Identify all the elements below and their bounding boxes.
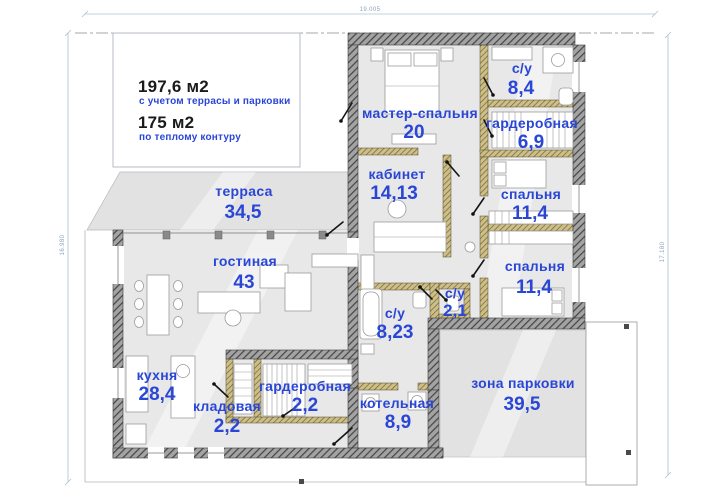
svg-text:2,1: 2,1 <box>443 301 467 320</box>
svg-text:гостиная: гостиная <box>213 253 277 269</box>
floor-plan-canvas: 19.005 16.980 17.180 <box>0 0 710 502</box>
svg-text:с/у: с/у <box>385 305 405 321</box>
svg-text:39,5: 39,5 <box>504 394 541 415</box>
svg-text:гардеробная: гардеробная <box>259 378 351 394</box>
svg-text:20: 20 <box>403 122 424 143</box>
svg-text:8,4: 8,4 <box>508 78 535 99</box>
svg-text:кладовая: кладовая <box>193 398 261 414</box>
svg-text:11,4: 11,4 <box>516 277 552 298</box>
room-label-office: кабинет 14,13 <box>368 166 425 204</box>
svg-text:котельная: котельная <box>360 395 434 411</box>
svg-text:мастер-спальня: мастер-спальня <box>362 105 478 121</box>
dimension-right-label: 17.180 <box>660 241 666 262</box>
svg-text:терраса: терраса <box>215 183 272 199</box>
svg-text:2,2: 2,2 <box>214 416 240 437</box>
dimension-left-label: 16.980 <box>60 234 66 255</box>
svg-text:28,4: 28,4 <box>139 384 176 405</box>
room-label-kitchen: кухня 28,4 <box>137 367 178 405</box>
svg-text:6,9: 6,9 <box>518 132 544 153</box>
room-label-bathroom-guest: с/у 2,1 <box>443 285 467 320</box>
svg-text:8,9: 8,9 <box>385 412 411 433</box>
svg-text:34,5: 34,5 <box>225 202 262 223</box>
svg-text:11,4: 11,4 <box>512 203 548 224</box>
heated-area-note: по теплому контуру <box>139 132 241 143</box>
svg-text:кухня: кухня <box>137 367 178 383</box>
svg-text:кабинет: кабинет <box>368 166 425 182</box>
total-area-value: 197,6 м2 <box>138 77 209 96</box>
svg-text:спальня: спальня <box>501 186 561 202</box>
parking-outline-rect <box>586 322 637 485</box>
heated-area-value: 175 м2 <box>138 113 194 132</box>
svg-text:зона парковки: зона парковки <box>471 375 575 391</box>
svg-text:14,13: 14,13 <box>370 183 418 204</box>
svg-text:2,2: 2,2 <box>292 395 318 416</box>
svg-text:43: 43 <box>233 272 254 293</box>
dimension-top-label: 19.005 <box>360 7 381 13</box>
svg-text:8,23: 8,23 <box>377 322 414 343</box>
svg-text:с/у: с/у <box>512 60 532 76</box>
svg-text:гардеробная: гардеробная <box>486 115 578 131</box>
floor-plan-drawing: 19.005 16.980 17.180 <box>0 0 710 502</box>
svg-text:с/у: с/у <box>445 285 465 301</box>
room-label-bathroom-master: с/у 8,4 <box>508 60 535 99</box>
total-area-note: с учетом террасы и парковки <box>139 96 291 107</box>
svg-text:спальня: спальня <box>505 258 565 274</box>
